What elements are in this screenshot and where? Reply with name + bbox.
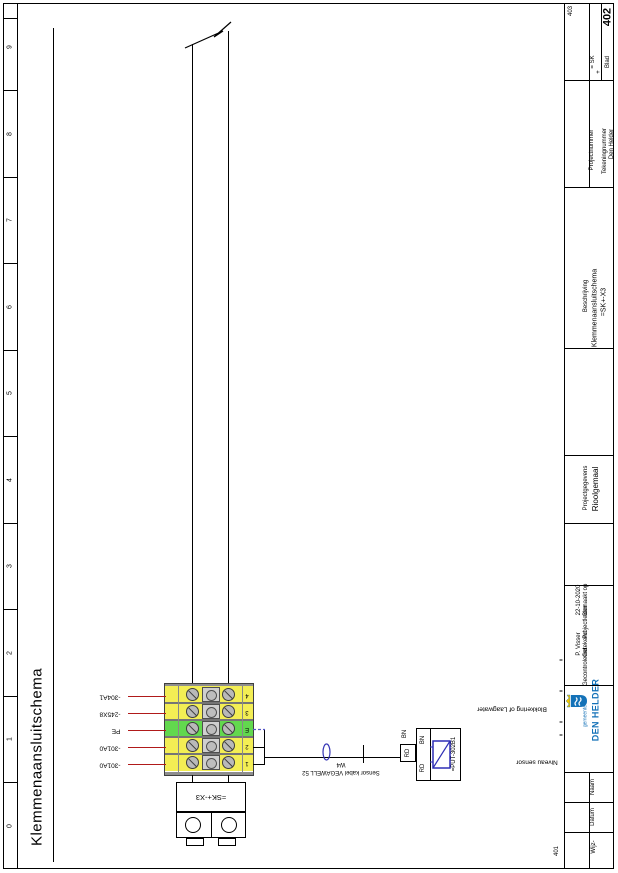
shield-tick: [363, 745, 364, 763]
revision-datum-label: Datum: [590, 808, 596, 826]
tb-beschrijving-label: Beschrijving: [583, 280, 589, 312]
sensor-divider: [430, 728, 431, 781]
connector-foot: [218, 838, 236, 846]
screw-icon: [186, 756, 199, 769]
screw-slot-icon: [188, 741, 196, 749]
ruler-tick: [3, 696, 17, 697]
screw-icon: [222, 756, 235, 769]
screw-icon: [186, 705, 199, 718]
tb-divider: [564, 187, 614, 188]
wire-leader-line: [128, 764, 166, 765]
screw-slot-icon: [224, 724, 232, 732]
wire-leader-line: [128, 747, 166, 748]
logo-gemeente-text: gemeente: [584, 705, 589, 727]
clamp-icon: [202, 687, 220, 702]
clamp-icon: [202, 704, 220, 719]
clamp-icon: [202, 738, 220, 753]
tb-divider: [564, 348, 614, 349]
tb-projectgegevens-value: Rioolgemaal: [592, 467, 600, 511]
tb-divider: [564, 685, 614, 686]
ruler-number: 5: [7, 391, 14, 395]
connector-stub-line: [228, 775, 229, 782]
sensor-inner-label: RD: [420, 764, 426, 773]
screw-icon: [222, 739, 235, 752]
nav-next-sheet: 403: [568, 6, 574, 16]
terminal-number: E: [245, 726, 249, 732]
wire-label: -245X8: [100, 710, 121, 717]
screw-slot-icon: [224, 758, 232, 766]
tb-eq-field: = SK: [590, 55, 596, 68]
tb-divider: [564, 523, 614, 524]
annotation-niveau-sensor: Niveau sensor: [516, 758, 558, 765]
screw-slot-icon: [188, 724, 196, 732]
sensor-tag: =PUT-302B1: [451, 737, 457, 772]
terminal-number: 4: [245, 692, 248, 698]
wire-leader-line: [128, 730, 166, 731]
ref-mark: =: [559, 731, 563, 737]
connector-tag: =SK+-X3: [196, 793, 226, 801]
connector-divider: [211, 812, 212, 838]
cable-conductor-line: [228, 31, 229, 686]
wire-leader-line: [128, 696, 166, 697]
sensor-wire-joiner: [264, 730, 265, 765]
tb-tekeningnummer-value: Den Helder: [609, 129, 615, 159]
connector-pin-icon: [221, 817, 237, 833]
sensor-terminal-label: RD: [405, 749, 411, 758]
title-underline: [53, 28, 54, 862]
clamp-icon: [202, 721, 220, 736]
ruler-number: 2: [7, 651, 14, 655]
ruler-tick: [3, 177, 17, 178]
tb-projectnummer-label: Projectnummer: [589, 130, 595, 171]
nav-prev-sheet: 401: [554, 846, 560, 856]
annotation-blokkering: Blokkering of Laagwater: [477, 705, 547, 712]
ref-mark: =: [559, 718, 563, 724]
cable-description: Sensor kabel VEGAWELL 52: [302, 769, 380, 775]
tb-tekeningnummer-label: Tekeningnummer: [602, 128, 608, 174]
cable-name: W4: [337, 761, 346, 767]
sheet-number: 402: [603, 8, 614, 26]
ruler-tick: [3, 350, 17, 351]
schematic-page: 9 8 7 6 5 4 3 2 1 0 Klemmenaansluitschem…: [0, 0, 618, 873]
tb-getekend-value: P. Visser: [576, 632, 582, 655]
sensor-inner-label: BN: [420, 736, 426, 744]
tb-beschrijving-value: Klemmenaansluitschema: [592, 269, 599, 347]
wire-label: -304A1: [100, 693, 121, 700]
terminal-number: 3: [245, 709, 248, 715]
ruler-number: 4: [7, 478, 14, 482]
page-border: [3, 3, 614, 869]
ref-mark: =: [559, 687, 563, 693]
ruler-tick: [3, 18, 17, 19]
logo-den-helder-text: DEN HELDER: [591, 679, 600, 742]
screw-icon: [222, 688, 235, 701]
screw-icon: [186, 688, 199, 701]
screw-icon: [222, 722, 235, 735]
connector-foot: [186, 838, 204, 846]
screw-slot-icon: [188, 758, 196, 766]
wire-label-pe: PE: [112, 727, 121, 734]
sensor-terminal-label: BN: [402, 730, 408, 738]
ruler-tick: [3, 523, 17, 524]
cable-conductor-line: [192, 44, 193, 686]
tb-plus-field: +: [596, 70, 602, 74]
ruler-number: 7: [7, 218, 14, 222]
revision-wijz-label: Wijz-: [591, 840, 597, 853]
terminal-number: 2: [245, 743, 248, 749]
ruler-tick: [3, 782, 17, 783]
revision-naam-label: Naam: [590, 779, 596, 795]
tb-blad-label: Blad: [605, 56, 611, 68]
screw-icon: [186, 722, 199, 735]
wire-leader-line: [128, 713, 166, 714]
ruler-tick: [3, 263, 17, 264]
tb-projectgegevens-label: Projectgegevens: [583, 466, 589, 511]
connector-pin-icon: [185, 817, 201, 833]
title-block-border-line: [564, 3, 565, 869]
connector-stub-line: [192, 775, 193, 782]
ruler-number: 0: [7, 824, 14, 828]
page-title: Klemmenaansluitschema: [30, 668, 45, 846]
screw-slot-icon: [188, 690, 196, 698]
ruler-tick: [3, 609, 17, 610]
sensor-wire: [264, 757, 401, 758]
tb-divider: [564, 455, 614, 456]
tb-gemaakt-op-value: 22-10-2020: [576, 585, 582, 616]
screw-slot-icon: [224, 690, 232, 698]
ruler-number: 3: [7, 564, 14, 568]
tb-beschrijving-tag: =SK+-X3: [600, 288, 607, 316]
tb-divider: [564, 585, 614, 586]
ruler-number: 1: [7, 737, 14, 741]
screw-slot-icon: [224, 741, 232, 749]
tb-gecontroleerd-label: Gecontroleerd: [583, 648, 589, 686]
screw-slot-icon: [188, 707, 196, 715]
screw-icon: [222, 705, 235, 718]
wire-label: -301A0: [100, 744, 121, 751]
ruler-tick: [3, 436, 17, 437]
terminal-number: 1: [245, 760, 248, 766]
screw-slot-icon: [224, 707, 232, 715]
screw-icon: [186, 739, 199, 752]
ref-mark: =: [559, 656, 563, 662]
ruler-number: 8: [7, 132, 14, 136]
ruler-tick: [3, 90, 17, 91]
wire-label: -301A0: [100, 761, 121, 768]
ruler-number: 9: [7, 45, 14, 49]
clamp-icon: [202, 755, 220, 770]
ruler-number: 6: [7, 305, 14, 309]
ruler-border-line: [17, 3, 18, 869]
